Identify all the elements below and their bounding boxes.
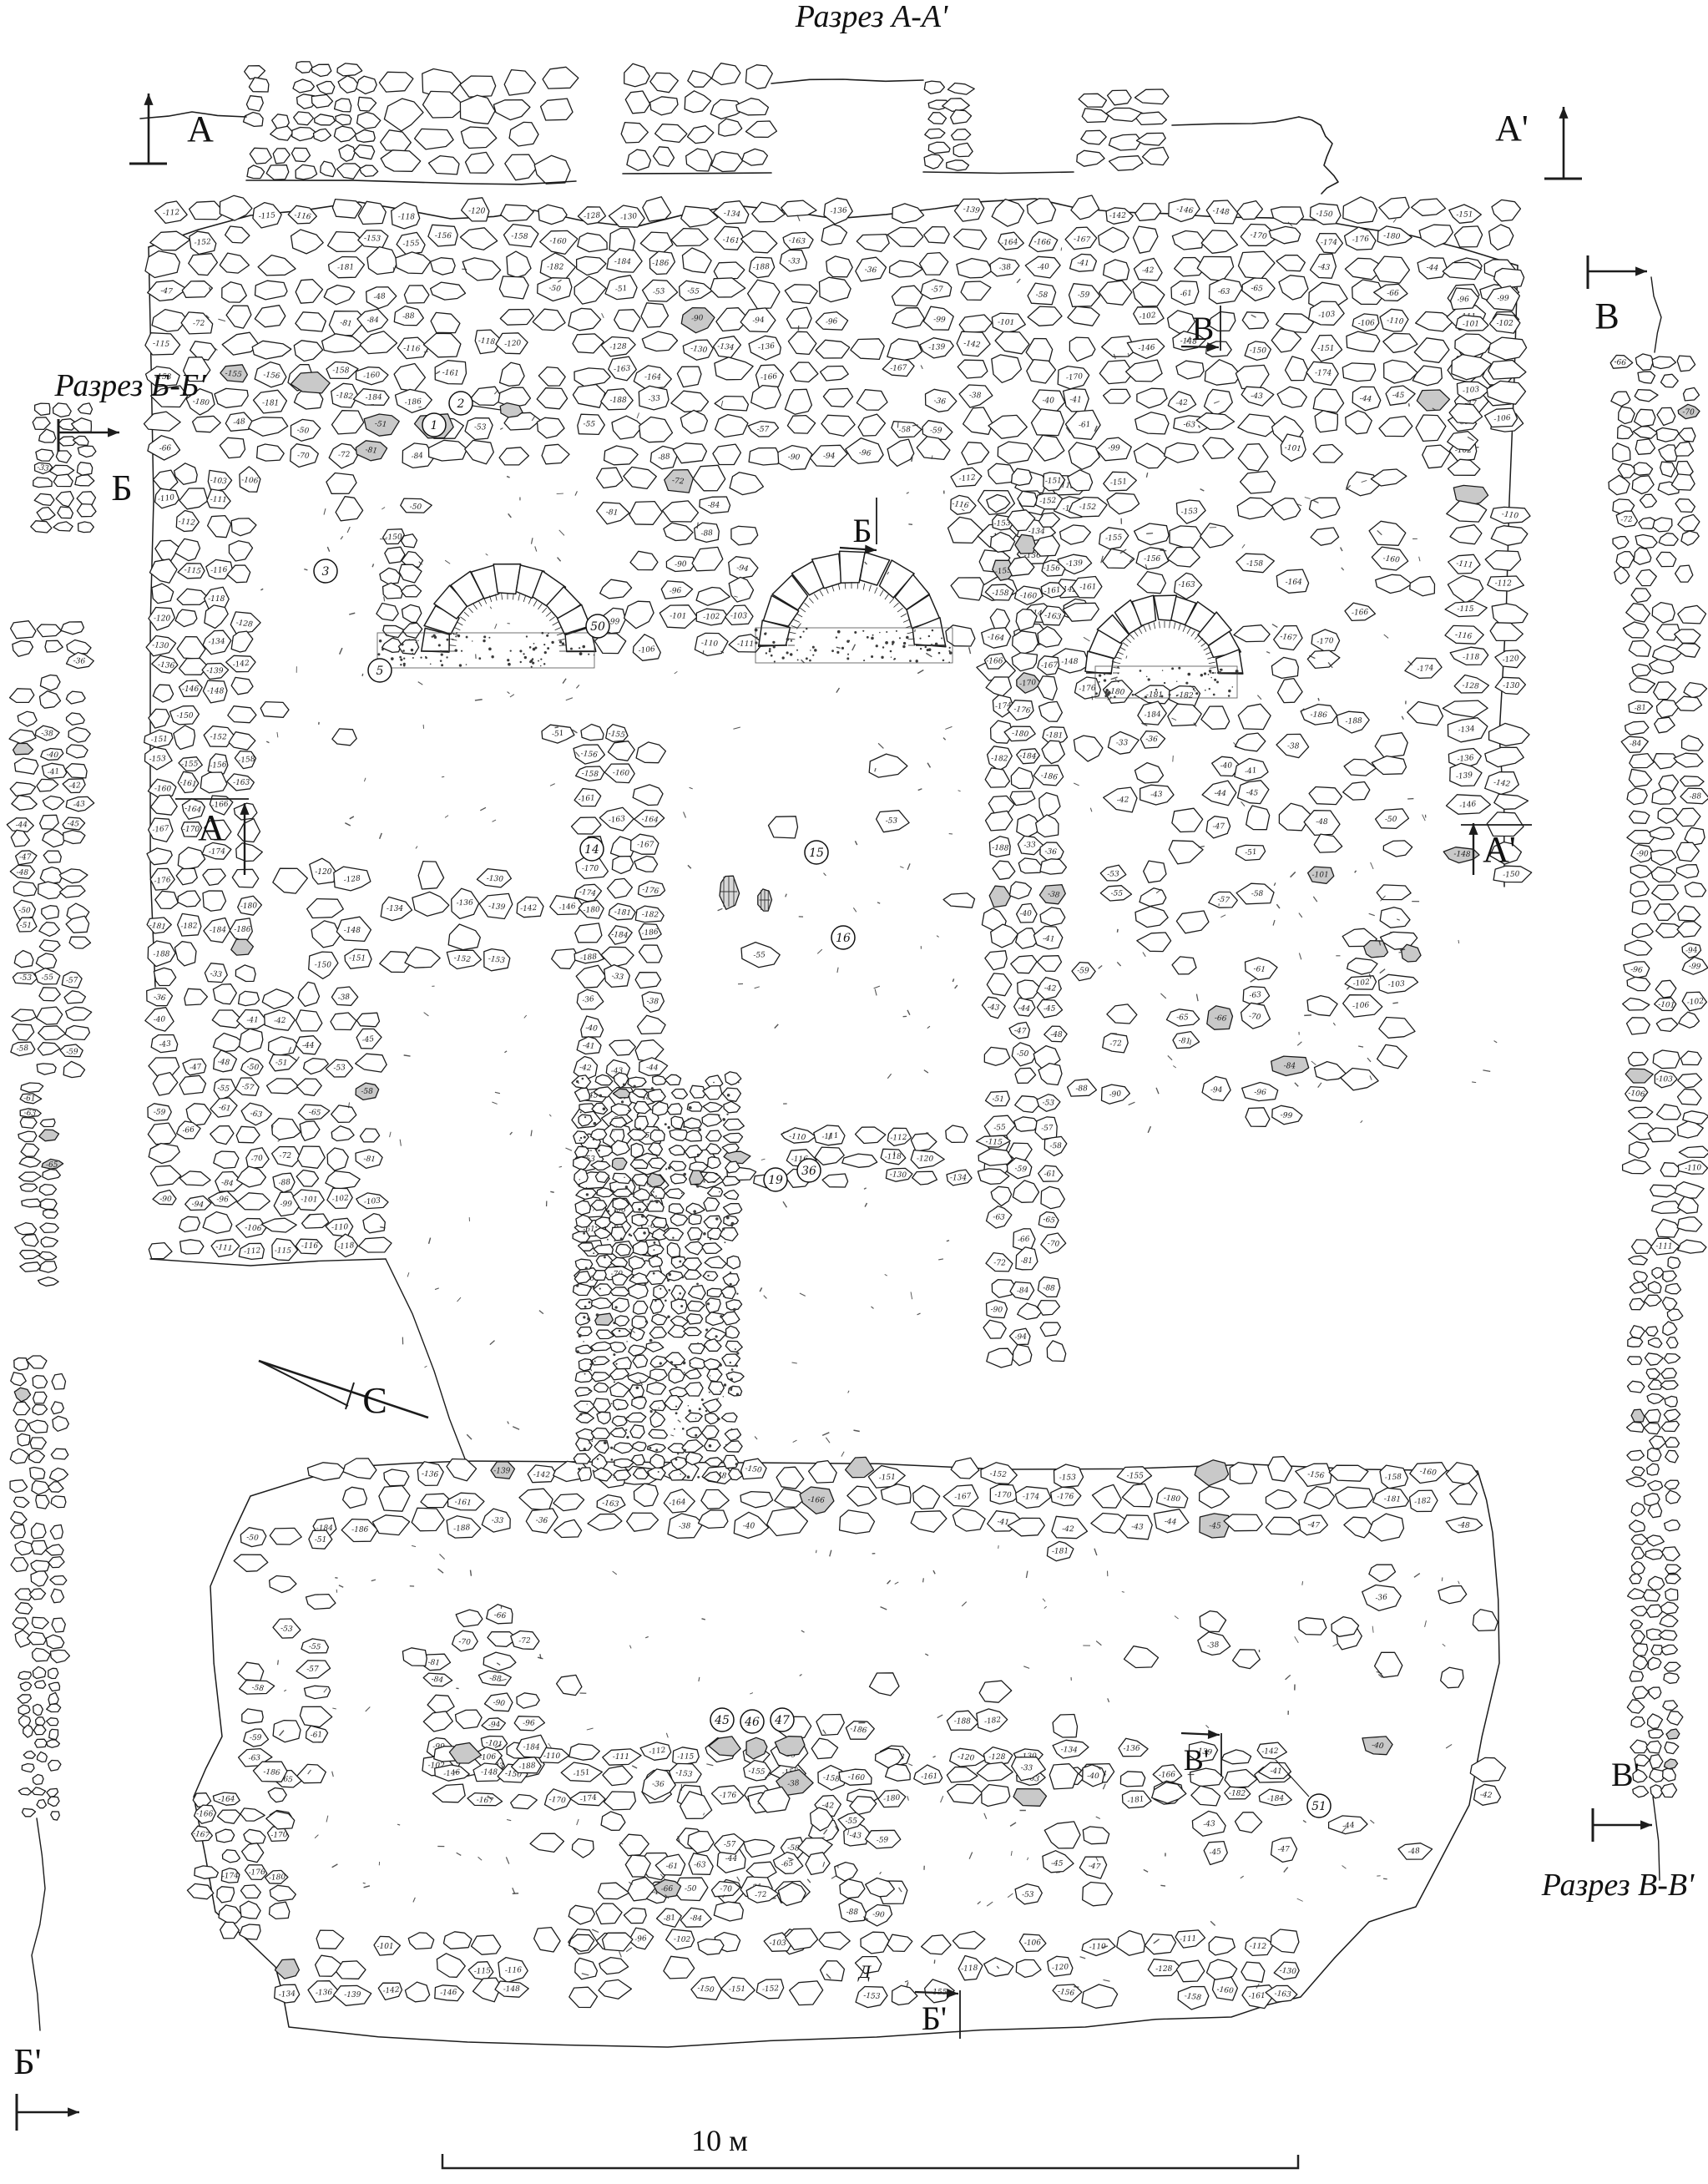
svg-text:-90: -90 [990, 1306, 1003, 1315]
svg-text:-43: -43 [73, 800, 86, 809]
svg-text:-94: -94 [752, 316, 765, 326]
svg-text:-146: -146 [558, 902, 576, 913]
svg-text:-84: -84 [1284, 1062, 1296, 1070]
svg-text:-163: -163 [788, 236, 806, 245]
svg-text:-102: -102 [1686, 998, 1704, 1008]
svg-text:-174: -174 [1315, 369, 1332, 377]
svg-text:-112: -112 [244, 1246, 261, 1256]
svg-text:-51: -51 [19, 922, 32, 930]
svg-text:-57: -57 [241, 1083, 255, 1093]
svg-text:-45: -45 [1246, 789, 1258, 798]
svg-text:-66: -66 [661, 1885, 674, 1894]
svg-text:-161: -161 [921, 1772, 938, 1782]
svg-text:-112: -112 [163, 209, 180, 218]
svg-text:-158: -158 [992, 589, 1009, 598]
svg-text:-99: -99 [1689, 963, 1701, 972]
svg-text:-156: -156 [263, 371, 280, 381]
svg-text:-90: -90 [1636, 851, 1649, 859]
svg-text:-53: -53 [333, 1064, 346, 1073]
svg-text:-50: -50 [296, 427, 310, 436]
svg-text:-59: -59 [1014, 1165, 1028, 1174]
svg-text:-55: -55 [753, 951, 766, 960]
svg-text:-47: -47 [1307, 1521, 1321, 1530]
svg-text:-55: -55 [993, 1124, 1007, 1133]
column-drums [720, 876, 772, 911]
svg-text:-94: -94 [736, 564, 750, 574]
svg-text:-160: -160 [847, 1773, 865, 1782]
svg-text:-151: -151 [1045, 477, 1063, 486]
svg-text:19: 19 [768, 1174, 783, 1187]
svg-text:-160: -160 [1216, 1985, 1234, 1995]
svg-text:-176: -176 [248, 1868, 265, 1878]
svg-text:-186: -186 [234, 926, 250, 934]
svg-text:-110: -110 [789, 1133, 806, 1143]
svg-text:-164: -164 [987, 633, 1004, 643]
svg-text:46: 46 [744, 1716, 760, 1729]
svg-text:-150: -150 [385, 533, 402, 542]
svg-text:-112: -112 [958, 473, 976, 483]
stippled-fill-bands [377, 628, 1239, 1479]
svg-text:-66: -66 [1614, 358, 1627, 367]
svg-text:-174: -174 [209, 847, 226, 857]
svg-text:-134: -134 [387, 905, 403, 913]
svg-text:-164: -164 [1286, 579, 1302, 587]
svg-text:-101: -101 [377, 1943, 394, 1951]
svg-text:-42: -42 [1175, 399, 1188, 408]
svg-text:-96: -96 [523, 1719, 535, 1727]
svg-text:-48: -48 [1316, 818, 1328, 827]
svg-text:-151: -151 [729, 1985, 745, 1994]
section-bb-title: Разрез Б-Б' [55, 370, 206, 402]
svg-text:-142: -142 [533, 1471, 551, 1480]
svg-text:-184: -184 [614, 258, 632, 266]
svg-text:-99: -99 [933, 316, 946, 325]
svg-text:-184: -184 [611, 931, 629, 940]
svg-text:-47: -47 [1088, 1862, 1101, 1872]
svg-text:-120: -120 [468, 207, 485, 215]
svg-text:-158: -158 [1385, 1474, 1402, 1483]
svg-text:-164: -164 [669, 1499, 686, 1509]
svg-text:3: 3 [322, 565, 330, 579]
svg-text:-96: -96 [858, 449, 872, 458]
svg-text:-66: -66 [1215, 1014, 1227, 1024]
svg-text:-84: -84 [690, 1914, 702, 1924]
svg-text:-161: -161 [442, 369, 459, 378]
svg-text:-65: -65 [309, 1109, 321, 1118]
marker-b-prime-bottom-left: Б' [13, 2044, 41, 2080]
svg-text:1: 1 [431, 419, 438, 432]
svg-text:-55: -55 [309, 1642, 321, 1651]
svg-text:-115: -115 [275, 1246, 292, 1255]
svg-text:-184: -184 [1144, 710, 1161, 720]
svg-text:-167: -167 [890, 364, 907, 373]
svg-text:-63: -63 [1249, 991, 1262, 1000]
svg-text:-134: -134 [1060, 1746, 1078, 1755]
svg-text:-161: -161 [454, 1498, 472, 1507]
svg-text:-151: -151 [1317, 345, 1334, 353]
svg-text:-106: -106 [1628, 1089, 1645, 1100]
svg-text:-51: -51 [275, 1059, 288, 1068]
svg-text:-155: -155 [1127, 1473, 1144, 1481]
feature-letter-d: Д [859, 1963, 871, 1981]
svg-text:-90: -90 [872, 1910, 885, 1919]
svg-text:-110: -110 [701, 640, 719, 649]
svg-text:-170: -170 [270, 1831, 288, 1840]
svg-text:-163: -163 [602, 1499, 619, 1509]
svg-text:-156: -156 [435, 232, 452, 240]
svg-text:-59: -59 [154, 1108, 166, 1117]
svg-text:-152: -152 [1039, 497, 1057, 506]
svg-text:-182: -182 [1229, 1789, 1246, 1797]
svg-text:-170: -170 [1065, 372, 1083, 382]
svg-text:-156: -156 [1144, 555, 1160, 564]
svg-text:-70: -70 [1248, 1012, 1261, 1022]
svg-text:-36: -36 [1375, 1593, 1388, 1602]
svg-text:-41: -41 [583, 1042, 595, 1051]
svg-text:-182: -182 [1176, 691, 1194, 700]
svg-text:-50: -50 [18, 907, 31, 915]
svg-text:-180: -180 [240, 902, 258, 911]
svg-text:-155: -155 [748, 1767, 766, 1777]
svg-text:-38: -38 [998, 263, 1012, 272]
svg-text:-142: -142 [520, 904, 538, 913]
plan-marker-v: В [1192, 312, 1215, 346]
svg-text:-66: -66 [1018, 1236, 1031, 1245]
svg-text:-48: -48 [1458, 1521, 1470, 1530]
svg-text:-50: -50 [685, 1884, 697, 1893]
svg-text:-61: -61 [1079, 421, 1091, 430]
svg-text:-47: -47 [1014, 1027, 1027, 1036]
north-arrow [259, 1361, 428, 1418]
svg-text:-65: -65 [781, 1859, 794, 1868]
svg-text:-96: -96 [670, 587, 682, 596]
svg-text:-36: -36 [582, 995, 595, 1005]
svg-text:-163: -163 [1044, 612, 1062, 622]
svg-text:-181: -181 [1046, 731, 1064, 741]
svg-text:-134: -134 [717, 342, 735, 352]
svg-text:-184: -184 [1019, 752, 1037, 761]
section-vv-title: Разрез В-В' [1542, 1869, 1695, 1901]
plan-stonework: -112-115-116-118-120-128-130-134-136-139… [144, 195, 1532, 2010]
svg-text:51: 51 [1311, 1800, 1326, 1813]
svg-text:-57: -57 [931, 286, 943, 294]
svg-text:-188: -188 [579, 953, 597, 963]
svg-text:-63: -63 [248, 1754, 260, 1763]
svg-text:-66: -66 [159, 444, 172, 453]
svg-text:-81: -81 [1021, 1257, 1033, 1266]
svg-text:-84: -84 [411, 452, 424, 462]
svg-text:-130: -130 [152, 641, 169, 650]
svg-text:-48: -48 [1407, 1847, 1421, 1856]
svg-text:-118: -118 [208, 595, 225, 604]
svg-text:-186: -186 [641, 928, 659, 938]
svg-text:-180: -180 [1163, 1494, 1180, 1504]
svg-text:-139: -139 [344, 1991, 361, 1999]
svg-text:-88: -88 [658, 452, 671, 463]
svg-text:-167: -167 [954, 1492, 972, 1502]
svg-text:-112: -112 [1495, 580, 1512, 589]
svg-text:-181: -181 [614, 908, 631, 918]
svg-text:-44: -44 [646, 1064, 659, 1073]
svg-text:-101: -101 [998, 318, 1015, 327]
svg-text:-158: -158 [511, 232, 528, 241]
svg-text:-167: -167 [1280, 633, 1297, 643]
svg-text:-51: -51 [1245, 848, 1257, 857]
svg-text:-65: -65 [1251, 285, 1263, 294]
svg-text:-72: -72 [1620, 516, 1633, 525]
svg-text:-36: -36 [536, 1516, 548, 1525]
svg-text:-53: -53 [886, 817, 898, 827]
svg-text:-151: -151 [1109, 478, 1127, 488]
svg-text:-47: -47 [189, 1063, 203, 1072]
svg-text:-88: -88 [1689, 792, 1701, 801]
svg-text:-44: -44 [1359, 395, 1372, 404]
svg-text:-48: -48 [233, 417, 246, 427]
svg-text:-155: -155 [181, 760, 199, 769]
svg-text:-47: -47 [1277, 1845, 1290, 1853]
svg-text:-163: -163 [233, 779, 250, 787]
svg-text:-72: -72 [993, 1259, 1006, 1267]
svg-text:-148: -148 [344, 927, 361, 935]
svg-text:-103: -103 [730, 612, 747, 620]
svg-text:-102: -102 [703, 613, 720, 622]
svg-text:-33: -33 [611, 972, 624, 982]
svg-text:-96: -96 [1630, 966, 1644, 975]
svg-text:-186: -186 [263, 1768, 280, 1777]
svg-text:-42: -42 [1117, 796, 1129, 805]
svg-text:-101: -101 [1312, 871, 1329, 879]
svg-text:-186: -186 [351, 1526, 369, 1534]
plan-marker-v-prime: В' [1184, 1745, 1210, 1775]
svg-text:-150: -150 [315, 962, 331, 970]
svg-text:-90: -90 [159, 1196, 172, 1204]
svg-text:-150: -150 [1503, 870, 1520, 879]
svg-text:-184: -184 [523, 1744, 540, 1752]
svg-text:-112: -112 [890, 1134, 907, 1143]
svg-text:-88: -88 [1043, 1284, 1055, 1293]
svg-text:-106: -106 [1024, 1939, 1042, 1948]
svg-text:-81: -81 [1634, 704, 1646, 713]
svg-text:-59: -59 [1077, 968, 1089, 976]
svg-text:-130: -130 [1279, 1967, 1296, 1976]
svg-text:-115: -115 [677, 1752, 695, 1761]
svg-text:-181: -181 [1052, 1547, 1069, 1556]
svg-text:-153: -153 [1180, 508, 1198, 517]
svg-text:-106: -106 [241, 476, 259, 485]
svg-text:-43: -43 [849, 1832, 862, 1841]
svg-text:47: 47 [774, 1714, 790, 1727]
svg-text:-167: -167 [476, 1796, 493, 1805]
svg-text:-111: -111 [1655, 1242, 1672, 1251]
svg-text:-53: -53 [20, 974, 33, 983]
svg-text:-70: -70 [1048, 1240, 1060, 1249]
svg-text:-45: -45 [1209, 1522, 1221, 1530]
svg-text:-94: -94 [1014, 1332, 1027, 1342]
svg-text:-167: -167 [1041, 661, 1059, 670]
svg-text:-101: -101 [301, 1196, 317, 1204]
svg-text:-96: -96 [634, 1934, 648, 1944]
svg-text:-188: -188 [609, 397, 626, 405]
svg-text:-148: -148 [1061, 658, 1079, 667]
svg-text:-166: -166 [1159, 1771, 1176, 1780]
marker-a-top-left: А [187, 111, 214, 148]
svg-text:-136: -136 [830, 206, 847, 215]
svg-text:-158: -158 [238, 756, 255, 766]
svg-text:-41: -41 [1077, 259, 1089, 268]
svg-text:5: 5 [376, 665, 384, 678]
svg-text:-188: -188 [153, 950, 170, 958]
svg-text:-102: -102 [331, 1194, 349, 1204]
svg-text:-81: -81 [340, 319, 353, 329]
svg-text:-166: -166 [196, 1810, 213, 1818]
svg-text:-40: -40 [1371, 1742, 1384, 1752]
svg-text:-36: -36 [1145, 736, 1158, 745]
svg-text:-152: -152 [1079, 503, 1097, 513]
svg-text:-102: -102 [1497, 320, 1513, 328]
svg-text:-106: -106 [1352, 1001, 1370, 1011]
svg-text:-161: -161 [1248, 1992, 1266, 2001]
svg-text:-134: -134 [279, 1989, 296, 1999]
svg-text:-36: -36 [1044, 847, 1057, 857]
svg-text:-84: -84 [1630, 740, 1642, 749]
svg-text:-115: -115 [473, 1967, 491, 1976]
svg-text:-88: -88 [846, 1908, 859, 1917]
svg-text:-139: -139 [493, 1467, 510, 1475]
svg-text:-111: -111 [1180, 1935, 1197, 1944]
svg-text:-55: -55 [41, 973, 54, 983]
svg-text:-84: -84 [431, 1676, 444, 1685]
svg-text:-116: -116 [403, 345, 421, 354]
svg-text:-174: -174 [1321, 239, 1338, 247]
svg-text:-184: -184 [365, 393, 382, 402]
svg-text:-103: -103 [363, 1196, 381, 1206]
svg-text:-72: -72 [193, 320, 205, 329]
svg-text:-58: -58 [361, 1088, 373, 1096]
svg-text:-40: -40 [46, 751, 58, 760]
svg-text:-63: -63 [993, 1213, 1005, 1222]
svg-text:-96: -96 [216, 1196, 229, 1204]
svg-text:-65: -65 [46, 1161, 58, 1170]
svg-text:-150: -150 [1250, 346, 1267, 355]
svg-text:-166: -166 [1033, 238, 1051, 247]
svg-text:-40: -40 [585, 1024, 599, 1034]
svg-text:-84: -84 [708, 501, 720, 510]
marker-a-prime-top-right: А' [1495, 110, 1529, 147]
site-plan-drawing: -33-36-38-40-41-42-43-44-45-47-48-50-51-… [0, 0, 1708, 2184]
svg-text:-106: -106 [245, 1224, 262, 1233]
svg-text:-38: -38 [646, 998, 659, 1007]
svg-text:-181: -181 [337, 263, 355, 272]
svg-text:-116: -116 [301, 1242, 318, 1251]
svg-text:-41: -41 [1069, 397, 1082, 405]
svg-text:-66: -66 [493, 1611, 507, 1620]
svg-text:-103: -103 [210, 477, 227, 487]
svg-text:-130: -130 [890, 1170, 907, 1180]
plan-marker-a: А [198, 810, 225, 847]
svg-text:-59: -59 [1078, 291, 1090, 300]
svg-text:-88: -88 [1075, 1084, 1088, 1094]
svg-text:-33: -33 [648, 394, 661, 403]
svg-text:-188: -188 [753, 263, 771, 272]
svg-text:-106: -106 [1357, 319, 1375, 328]
svg-text:-70: -70 [297, 452, 310, 461]
svg-text:-156: -156 [210, 761, 227, 770]
svg-text:-38: -38 [41, 730, 53, 738]
scale-bar-label: 10 м [691, 2126, 748, 2156]
svg-text:-118: -118 [398, 214, 415, 222]
svg-text:-142: -142 [1261, 1747, 1279, 1757]
svg-text:-152: -152 [210, 733, 227, 741]
svg-text:-99: -99 [1280, 1111, 1293, 1120]
svg-text:-174: -174 [1417, 665, 1434, 675]
svg-text:2: 2 [457, 397, 465, 411]
left-section-markers [17, 419, 119, 2131]
svg-text:-182: -182 [991, 755, 1008, 764]
svg-text:-148: -148 [207, 688, 224, 696]
svg-text:-151: -151 [1456, 210, 1473, 219]
svg-text:-180: -180 [1012, 730, 1029, 740]
svg-text:-139: -139 [206, 667, 224, 675]
svg-text:-170: -170 [548, 1796, 566, 1805]
svg-text:-57: -57 [66, 977, 78, 986]
svg-text:-174: -174 [1023, 1494, 1039, 1502]
svg-text:45: 45 [714, 1714, 730, 1727]
svg-text:-40: -40 [153, 1015, 165, 1024]
svg-text:-115: -115 [258, 211, 275, 221]
arched-openings [421, 551, 1243, 674]
svg-text:-134: -134 [950, 1175, 967, 1183]
svg-text:-153: -153 [675, 1769, 693, 1779]
svg-text:-94: -94 [191, 1201, 205, 1210]
svg-text:-167: -167 [637, 842, 654, 850]
svg-text:-160: -160 [154, 785, 172, 793]
svg-text:-166: -166 [807, 1496, 825, 1505]
svg-text:-41: -41 [1270, 1767, 1282, 1776]
svg-text:-42: -42 [1142, 266, 1155, 275]
svg-text:-152: -152 [194, 238, 211, 247]
svg-text:-146: -146 [182, 685, 199, 694]
svg-text:-182: -182 [180, 922, 198, 931]
svg-text:-84: -84 [1017, 1287, 1029, 1296]
svg-text:-111: -111 [210, 496, 228, 505]
svg-text:-43: -43 [1203, 1820, 1215, 1829]
svg-text:-188: -188 [453, 1524, 471, 1534]
svg-text:-48: -48 [217, 1058, 230, 1067]
svg-text:-151: -151 [349, 955, 366, 963]
svg-text:-81: -81 [663, 1914, 676, 1924]
svg-text:-118: -118 [884, 1153, 902, 1162]
svg-text:-51: -51 [614, 285, 627, 294]
svg-text:-176: -176 [1057, 1493, 1074, 1501]
svg-text:-99: -99 [280, 1201, 292, 1209]
svg-text:-38: -38 [1287, 742, 1300, 751]
svg-text:-111: -111 [737, 640, 754, 649]
svg-text:-63: -63 [1218, 288, 1230, 296]
svg-text:-150: -150 [176, 712, 194, 720]
svg-text:-136: -136 [1123, 1745, 1140, 1754]
svg-text:-142: -142 [382, 1986, 400, 1996]
svg-text:-163: -163 [1178, 581, 1195, 589]
svg-text:-58: -58 [1049, 1142, 1062, 1151]
plan-marker-b-prime: Б' [922, 2002, 947, 2035]
svg-text:-41: -41 [1043, 935, 1055, 944]
svg-text:-50: -50 [246, 1063, 260, 1072]
svg-text:-116: -116 [210, 566, 228, 575]
svg-text:-174: -174 [579, 888, 596, 898]
svg-text:-151: -151 [151, 736, 169, 745]
svg-text:-43: -43 [1251, 392, 1263, 402]
svg-text:-166: -166 [986, 658, 1003, 666]
